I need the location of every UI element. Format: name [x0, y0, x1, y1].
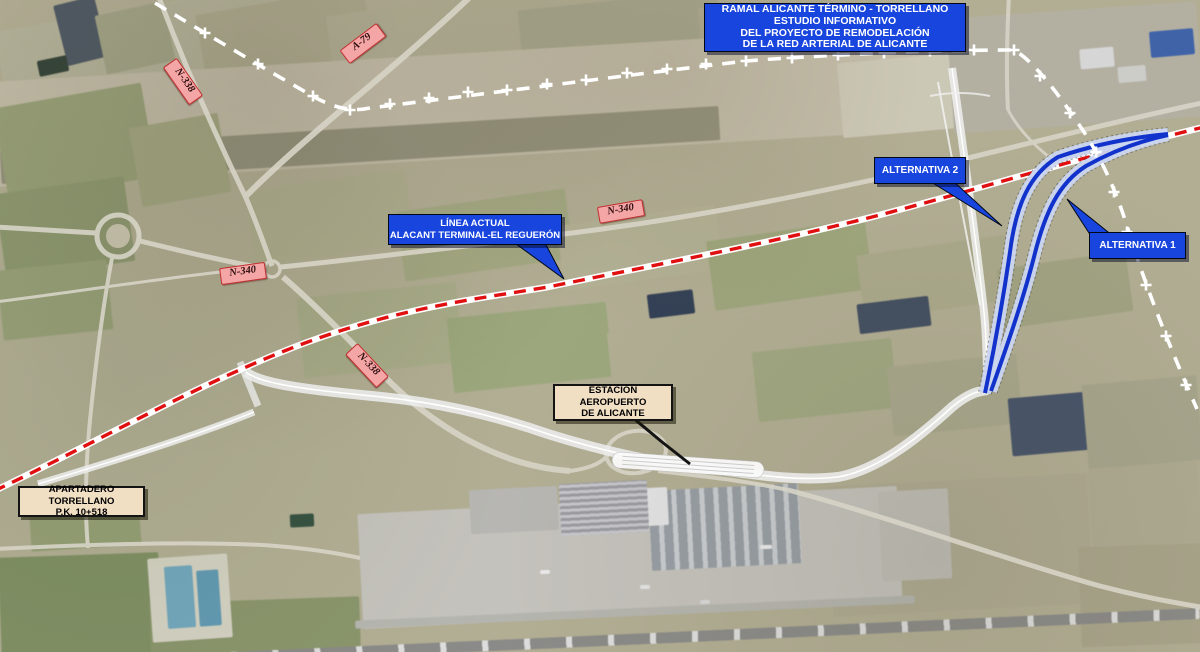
- terrain-patch: [760, 545, 772, 549]
- title-line: RAMAL ALICANTE TÉRMINO - TORRELLANO: [722, 4, 949, 16]
- callout-line: LÍNEA ACTUAL: [440, 218, 509, 229]
- terrain-patch: [1079, 47, 1115, 70]
- terrain-patch: [700, 600, 710, 604]
- callout-alternativa-2: ALTERNATIVA 2: [874, 157, 966, 184]
- terrain-patch: [447, 302, 614, 393]
- terrain-patch: [640, 585, 650, 589]
- terrain-patch: [296, 282, 463, 378]
- terrain-patch: [469, 486, 559, 535]
- terrain-patch: [878, 488, 953, 582]
- terrain-patch: [559, 480, 650, 537]
- title-box: RAMAL ALICANTE TÉRMINO - TORRELLANO ESTU…: [704, 3, 966, 52]
- terrain-patch: [706, 219, 874, 311]
- terrain-patch: [887, 353, 1024, 436]
- terrain-patch: [1117, 65, 1146, 83]
- title-line: ESTUDIO INFORMATIVO: [774, 16, 896, 28]
- terrain-patch: [164, 565, 196, 629]
- map-canvas: RAMAL ALICANTE TÉRMINO - TORRELLANO ESTU…: [0, 0, 1200, 652]
- terrain-patch: [540, 570, 550, 574]
- terrain-patch: [1082, 375, 1200, 470]
- callout-line: DE ALICANTE: [581, 408, 645, 420]
- terrain-patch: [647, 289, 696, 318]
- callout-line: ALTERNATIVA 1: [1099, 240, 1175, 251]
- terrain-patch: [290, 513, 315, 527]
- terrain-patch: [1008, 392, 1093, 457]
- terrain-patch: [0, 259, 113, 340]
- terrain-patch: [648, 483, 802, 571]
- terrain-patch: [752, 338, 899, 422]
- terrain-patch: [996, 251, 1133, 329]
- callout-line: ESTACIÓN AEROPUERTO: [555, 385, 671, 409]
- callout-line: ALTERNATIVA 2: [882, 165, 958, 176]
- terrain-patch: [196, 569, 222, 626]
- terrain-patch: [946, 1, 1200, 133]
- terrain-patch: [556, 204, 723, 291]
- title-line: DE LA RED ARTERIAL DE ALICANTE: [743, 39, 928, 51]
- callout-estacion-aeropuerto: ESTACIÓN AEROPUERTO DE ALICANTE: [553, 384, 673, 421]
- callout-alternativa-1: ALTERNATIVA 1: [1089, 232, 1186, 259]
- callout-line: P.K. 10+518: [56, 507, 108, 519]
- terrain-patch: [1087, 461, 1200, 548]
- terrain-patch: [0, 552, 162, 652]
- terrain-patch: [1078, 543, 1200, 647]
- satellite-terrain: [0, 0, 1200, 652]
- terrain-patch: [129, 113, 232, 207]
- callout-line: APARTADERO TORRELLANO: [20, 484, 143, 508]
- terrain-patch: [1149, 28, 1195, 58]
- callout-apartadero: APARTADERO TORRELLANO P.K. 10+518: [18, 486, 145, 517]
- terrain-patch: [837, 53, 963, 138]
- callout-linea-actual: LÍNEA ACTUAL ALACANT TERMINAL-EL REGUERÓ…: [388, 214, 562, 245]
- callout-line: ALACANT TERMINAL-EL REGUERÓN: [390, 230, 560, 241]
